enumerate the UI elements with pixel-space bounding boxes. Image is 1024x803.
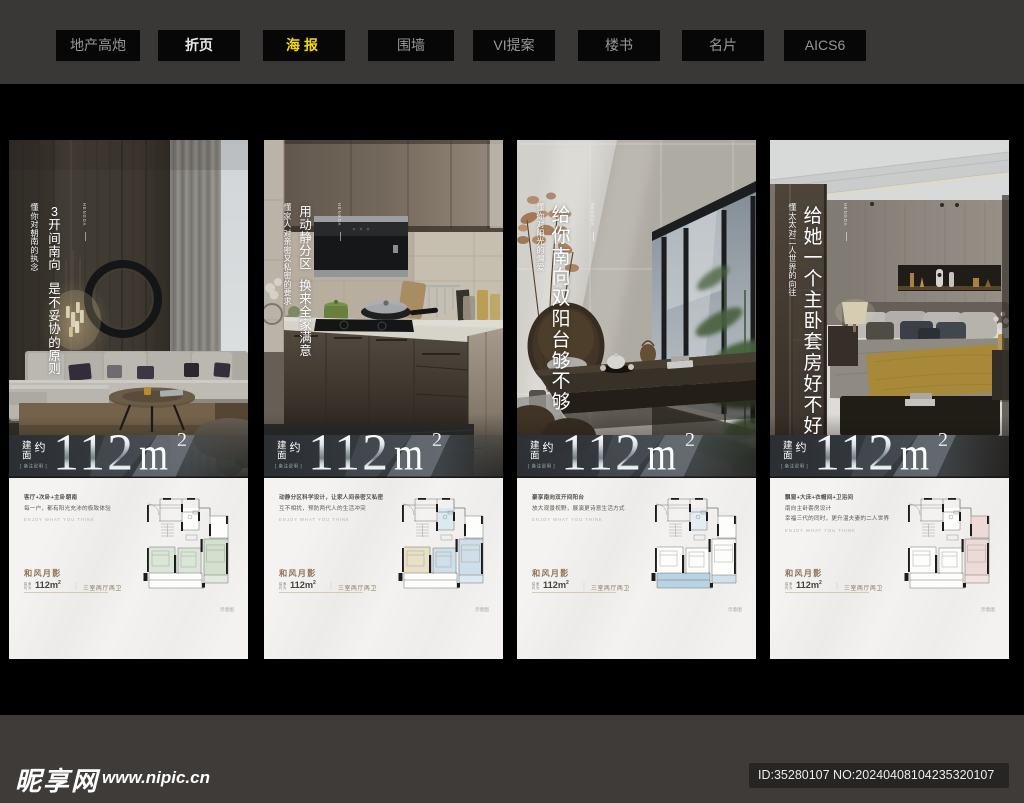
svg-text:[ 备注说明 ]: [ 备注说明 ] [275, 463, 302, 470]
svg-text:约: 约 [35, 441, 46, 454]
svg-text:面: 面 [783, 451, 793, 462]
svg-text:面: 面 [22, 451, 32, 462]
svg-text:m: m [139, 428, 168, 478]
svg-text:[ 备注说明 ]: [ 备注说明 ] [528, 463, 555, 470]
svg-text:约: 约 [290, 441, 301, 454]
svg-text:约: 约 [543, 441, 554, 454]
svg-text:2: 2 [432, 429, 442, 451]
svg-text:[ 备注说明 ]: [ 备注说明 ] [20, 463, 47, 470]
svg-text:m: m [394, 428, 423, 478]
svg-text:112: 112 [308, 428, 390, 478]
svg-text:112: 112 [814, 428, 896, 478]
svg-text:约: 约 [796, 441, 807, 454]
svg-text:112: 112 [53, 428, 135, 478]
svg-text:m: m [900, 428, 929, 478]
svg-text:2: 2 [685, 429, 695, 451]
svg-text:面: 面 [530, 451, 540, 462]
svg-text:面: 面 [277, 451, 287, 462]
svg-text:2: 2 [938, 429, 948, 451]
svg-text:m: m [647, 428, 676, 478]
svg-text:[ 备注说明 ]: [ 备注说明 ] [781, 463, 808, 470]
svg-text:112: 112 [561, 428, 643, 478]
svg-text:2: 2 [177, 429, 187, 451]
